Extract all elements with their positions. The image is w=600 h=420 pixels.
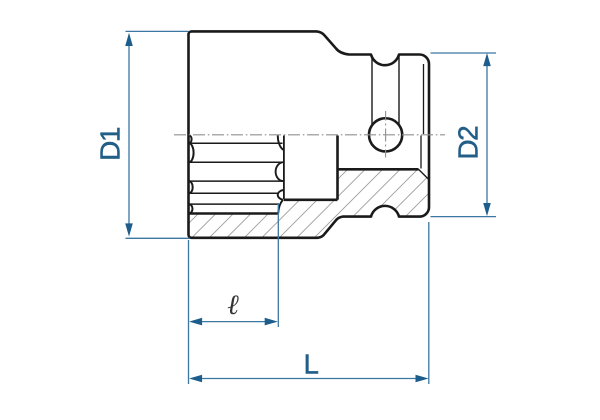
svg-text:D1: D1 [95, 127, 126, 161]
svg-text:D2: D2 [453, 126, 484, 160]
svg-text:ℓ: ℓ [227, 290, 239, 321]
svg-text:L: L [304, 349, 319, 380]
